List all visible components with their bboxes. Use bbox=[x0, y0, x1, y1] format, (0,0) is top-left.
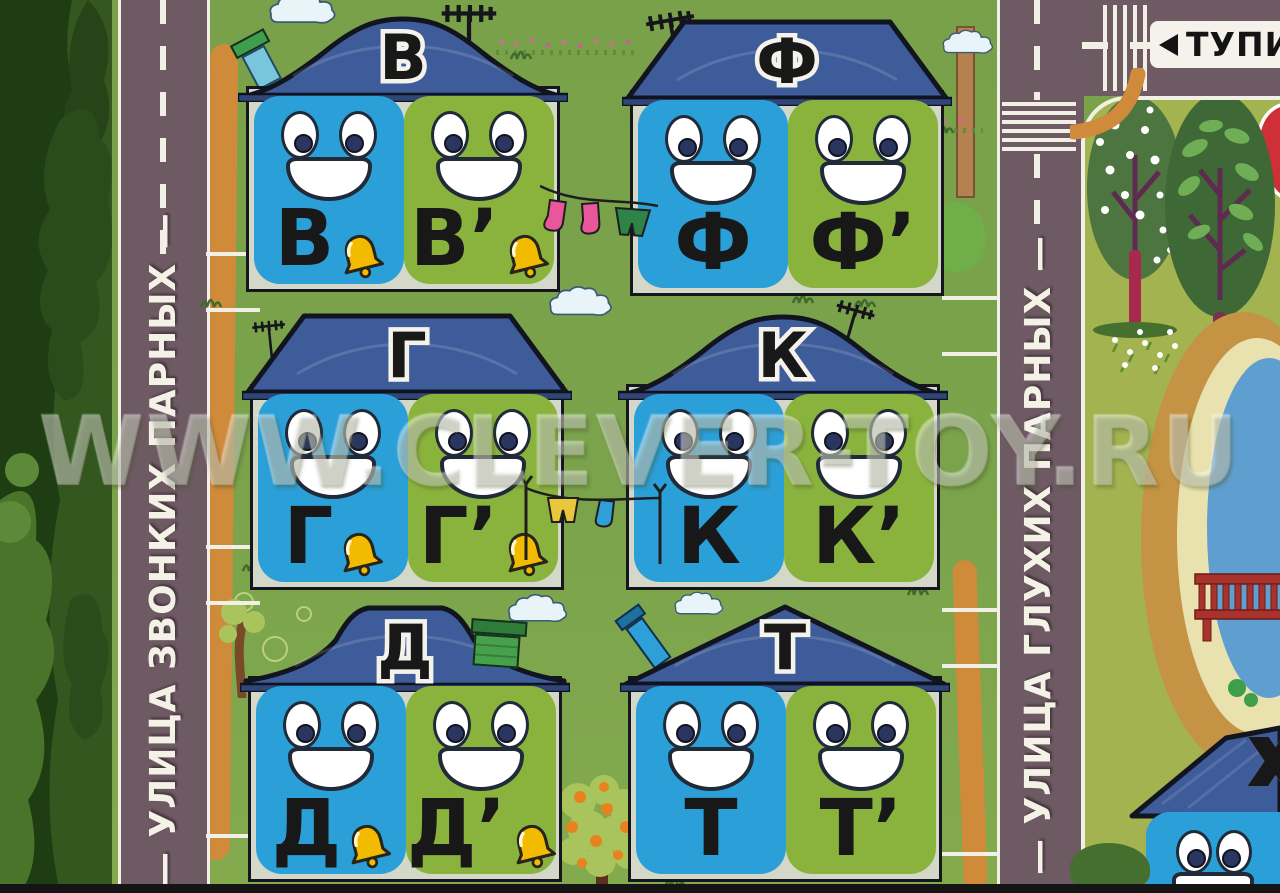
smiley-face-icon bbox=[786, 686, 936, 788]
eye-icon bbox=[1216, 830, 1252, 874]
eye-icon bbox=[283, 701, 321, 749]
hard-letter: Ф bbox=[674, 208, 751, 278]
eye-icon bbox=[433, 701, 471, 749]
hard-letter: Г bbox=[284, 502, 334, 572]
dead-end-label: ТУПИ bbox=[1186, 25, 1280, 64]
shorts bbox=[614, 208, 650, 236]
bell-icon bbox=[341, 818, 397, 874]
eye-icon bbox=[339, 111, 377, 159]
letter-row: В’ bbox=[404, 204, 554, 274]
hard-letter: Т bbox=[684, 794, 737, 864]
house-roof bbox=[622, 14, 952, 106]
pupil bbox=[676, 724, 695, 743]
chimney bbox=[468, 618, 527, 669]
pupil bbox=[444, 134, 463, 153]
smiley-face-icon bbox=[256, 686, 406, 788]
letter-row: К’ bbox=[784, 502, 934, 572]
letter-row: Г bbox=[258, 502, 408, 572]
letter-row: В bbox=[254, 204, 404, 274]
soft-letter: Г’ bbox=[419, 502, 498, 572]
dead-end-sign: ТУПИ bbox=[1150, 21, 1280, 68]
pupil bbox=[877, 724, 896, 743]
sock bbox=[544, 200, 566, 232]
street-voiceless-label: — УЛИЦА ГЛУХИХ ПАРНЫХ — bbox=[1017, 275, 1061, 875]
letter-row: Т’ bbox=[786, 794, 936, 864]
poster-bottom-edge bbox=[0, 884, 1280, 893]
pupil bbox=[446, 724, 465, 743]
eye-icon bbox=[281, 111, 319, 159]
eye-icon bbox=[489, 111, 527, 159]
eye-icon bbox=[341, 701, 379, 749]
corner-house-card bbox=[1146, 812, 1280, 893]
road-marking bbox=[1034, 0, 1040, 100]
soft-letter: К’ bbox=[812, 502, 905, 572]
smiley-face-icon bbox=[404, 96, 554, 198]
soft-letter: Т’ bbox=[820, 794, 903, 864]
eye-icon bbox=[431, 111, 469, 159]
soft-letter: Д’ bbox=[407, 794, 506, 864]
card-hard-В: В bbox=[254, 96, 404, 284]
eye-icon bbox=[815, 115, 853, 163]
eye-icon bbox=[1176, 830, 1212, 874]
card-soft-Д: Д’ bbox=[406, 686, 556, 874]
eye-icon bbox=[723, 115, 761, 163]
pupil bbox=[497, 724, 516, 743]
soft-letter: Ф’ bbox=[810, 208, 917, 278]
house-В: ВВВВ’ bbox=[238, 10, 568, 302]
smiley-face-icon bbox=[406, 686, 556, 788]
pupil bbox=[879, 138, 898, 157]
house-Т: ТТТТ’ bbox=[620, 600, 950, 892]
eye-icon bbox=[871, 701, 909, 749]
house-roof bbox=[238, 10, 568, 102]
letter-row: Ф’ bbox=[788, 208, 938, 278]
card-hard-Т: Т bbox=[636, 686, 786, 874]
eye-icon bbox=[721, 701, 759, 749]
pupil bbox=[294, 134, 313, 153]
pupil bbox=[826, 724, 845, 743]
house-roof bbox=[620, 600, 950, 692]
corner-house-roof-letter: Х Х bbox=[1254, 732, 1280, 796]
card-soft-Ф: Ф’ bbox=[788, 100, 938, 288]
pupil bbox=[345, 134, 364, 153]
house-Ф: ФФФФ’ bbox=[622, 14, 952, 306]
eye-icon bbox=[663, 701, 701, 749]
bush bbox=[1228, 679, 1246, 697]
left-arrow-icon bbox=[1159, 34, 1178, 56]
card-hard-Ф: Ф bbox=[638, 100, 788, 288]
smiley-face-icon bbox=[636, 686, 786, 788]
driveway bbox=[942, 608, 1000, 668]
hard-letter: К bbox=[677, 502, 741, 572]
letter-row: Д bbox=[256, 794, 406, 864]
hard-letter: В bbox=[275, 204, 334, 274]
watermark: WWW.CLEVER-TOY.RU bbox=[0, 396, 1280, 508]
bell-icon bbox=[334, 228, 390, 284]
soft-letter: В’ bbox=[410, 204, 499, 274]
letter-row: Ф bbox=[638, 208, 788, 278]
eye-icon bbox=[813, 701, 851, 749]
house-roof bbox=[242, 308, 572, 400]
sock bbox=[580, 203, 600, 234]
smiley-face-icon bbox=[638, 100, 788, 202]
clothesline bbox=[540, 180, 660, 272]
tree-trunk bbox=[1129, 250, 1141, 326]
pupil bbox=[828, 138, 847, 157]
hard-letter: Д bbox=[272, 794, 341, 864]
card-hard-Д: Д bbox=[256, 686, 406, 874]
crosswalk bbox=[1002, 102, 1076, 152]
eye-icon bbox=[491, 701, 529, 749]
phonics-poster: — УЛИЦА ЗВОНКИХ ПАРНЫХ — — УЛИЦА ГЛУХИХ … bbox=[0, 0, 1280, 893]
house-roof bbox=[618, 308, 948, 400]
pupil bbox=[296, 724, 315, 743]
street-voiced-label: — УЛИЦА ЗВОНКИХ ПАРНЫХ — bbox=[142, 248, 186, 888]
bell-icon bbox=[333, 526, 389, 582]
card-soft-В: В’ bbox=[404, 96, 554, 284]
pupil bbox=[729, 138, 748, 157]
letter-row: Д’ bbox=[406, 794, 556, 864]
pupil bbox=[495, 134, 514, 153]
smiley-face-icon bbox=[788, 100, 938, 202]
card-soft-Т: Т’ bbox=[786, 686, 936, 874]
smiley-face-icon bbox=[254, 96, 404, 198]
pupil bbox=[727, 724, 746, 743]
pupil bbox=[347, 724, 366, 743]
eye-icon bbox=[873, 115, 911, 163]
road-marking bbox=[1034, 154, 1040, 242]
junction-path bbox=[1070, 68, 1162, 140]
pupil bbox=[678, 138, 697, 157]
grass-patch bbox=[1093, 322, 1177, 338]
letter-row: Т bbox=[636, 794, 786, 864]
eye-icon bbox=[665, 115, 703, 163]
bush bbox=[1244, 693, 1258, 707]
